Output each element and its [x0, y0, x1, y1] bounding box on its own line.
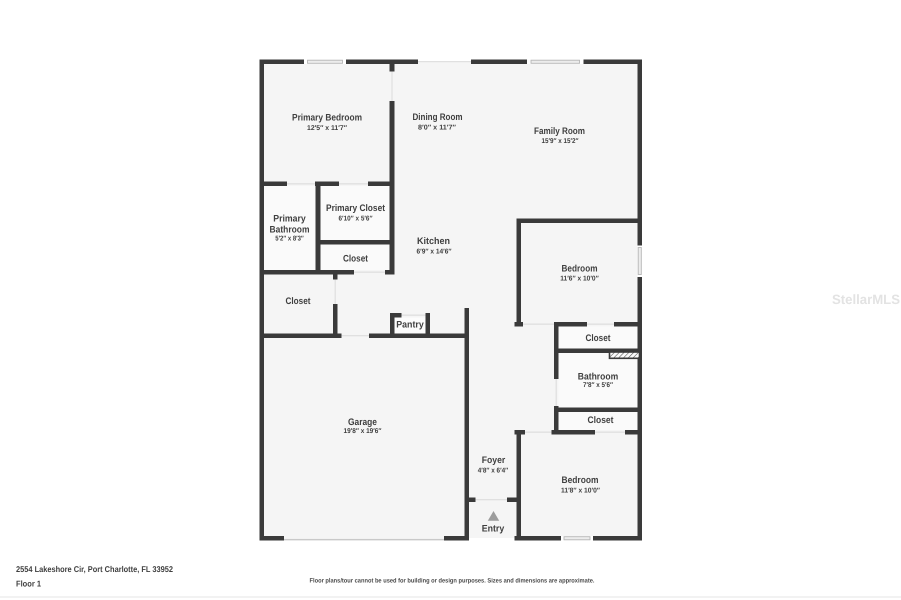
svg-text:Family Room: Family Room: [534, 126, 585, 137]
svg-text:12′5″ x 11′7″: 12′5″ x 11′7″: [307, 125, 348, 132]
svg-text:11′8″ x 10′0″: 11′8″ x 10′0″: [561, 487, 601, 494]
svg-text:2554 Lakeshore Cir, Port Charl: 2554 Lakeshore Cir, Port Charlotte, FL 3…: [16, 564, 173, 574]
svg-text:StellarMLS: StellarMLS: [832, 292, 900, 307]
svg-text:Primary: Primary: [273, 213, 306, 224]
svg-text:Kitchen: Kitchen: [417, 236, 450, 247]
svg-text:Bathroom: Bathroom: [270, 224, 310, 235]
svg-text:4′8″ x 6′4″: 4′8″ x 6′4″: [478, 467, 509, 474]
svg-text:Primary Closet: Primary Closet: [326, 203, 386, 214]
svg-text:Floor plans/tour cannot be use: Floor plans/tour cannot be used for buil…: [310, 577, 595, 584]
svg-text:Foyer: Foyer: [482, 455, 506, 466]
svg-text:Closet: Closet: [586, 333, 612, 344]
svg-text:Closet: Closet: [343, 253, 369, 264]
svg-text:8′0″ x 11′7″: 8′0″ x 11′7″: [418, 124, 457, 131]
svg-text:7′8″ x 5′6″: 7′8″ x 5′6″: [583, 382, 614, 389]
svg-text:Closet: Closet: [286, 296, 312, 307]
svg-text:Primary Bedroom: Primary Bedroom: [292, 113, 362, 124]
svg-text:5′2″ x 8′3″: 5′2″ x 8′3″: [275, 235, 304, 242]
svg-text:Bedroom: Bedroom: [562, 475, 599, 486]
svg-text:Bedroom: Bedroom: [562, 264, 598, 275]
svg-text:Entry: Entry: [482, 523, 505, 534]
svg-text:Garage: Garage: [348, 417, 377, 428]
svg-text:Pantry: Pantry: [396, 320, 424, 331]
svg-text:Closet: Closet: [588, 415, 615, 426]
svg-text:Floor 1: Floor 1: [16, 578, 41, 588]
svg-text:6′9″ x 14′6″: 6′9″ x 14′6″: [417, 249, 453, 256]
svg-text:19′8″ x 19′6″: 19′8″ x 19′6″: [344, 428, 383, 435]
svg-text:Dining Room: Dining Room: [413, 112, 463, 123]
svg-text:11′6″ x 10′0″: 11′6″ x 10′0″: [560, 276, 599, 283]
svg-text:Bathroom: Bathroom: [578, 371, 619, 382]
svg-text:15′9″ x 15′2″: 15′9″ x 15′2″: [542, 138, 580, 145]
svg-text:6′10″ x 5′6″: 6′10″ x 5′6″: [339, 216, 374, 223]
